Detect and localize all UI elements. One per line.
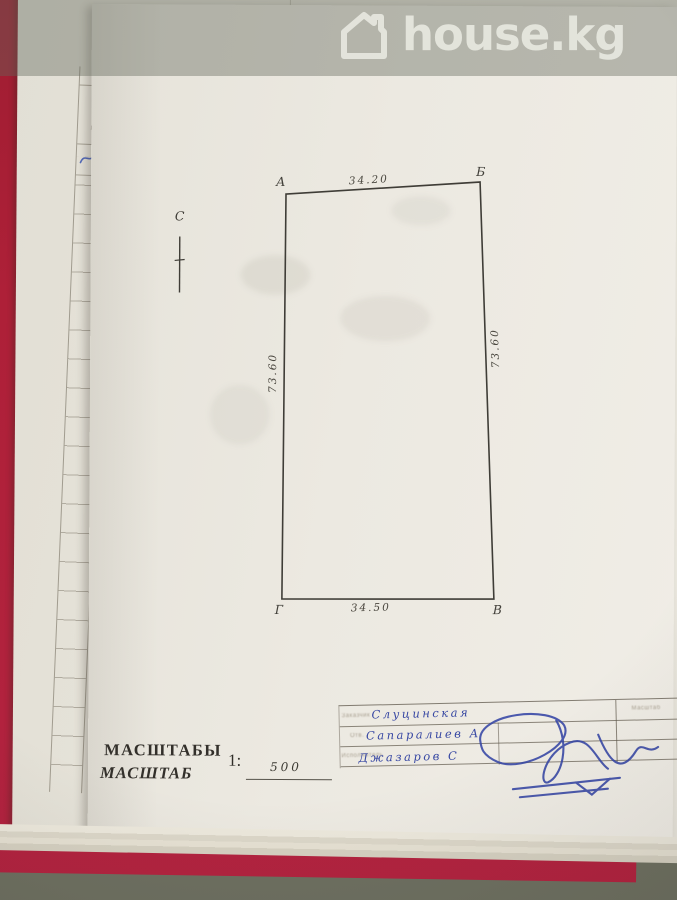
watermark: house.kg (336, 6, 626, 62)
scale-title: МАСШТАБЫ (104, 740, 222, 761)
row-printed-label: Отв. (350, 733, 364, 739)
dimension-top: 34.20 (349, 173, 390, 187)
watermark-brand: house.kg (402, 8, 626, 61)
watermark-band: house.kg (0, 0, 677, 76)
handwritten-name: Джазаров С (358, 749, 459, 765)
plot-boundary (282, 181, 496, 600)
handwritten-name: Слуцинская (371, 705, 470, 721)
scale-subtitle: МАСШТАБ (100, 763, 192, 783)
photo-of-land-plot-document: Литера С А Б В Г (0, 0, 677, 900)
scale-ratio-value: 500 (270, 760, 302, 774)
corner-label-G: Г (274, 602, 284, 617)
north-label: С (175, 208, 185, 223)
title-block-table: Заказчик Отв. Исполнитель Масштаб Слуцин… (338, 697, 677, 768)
table-right-header: Масштаб (631, 705, 660, 712)
corner-label-B: Б (475, 164, 485, 179)
handwritten-name: Сапаралиев А (366, 726, 481, 743)
north-arrow-tick (175, 259, 185, 260)
scale-ratio-prefix: 1: (228, 751, 241, 771)
row-printed-label: Заказчик (342, 713, 371, 720)
dimension-left: 73.60 (267, 353, 279, 393)
dimension-right: 73.60 (489, 328, 502, 368)
plot-plan-sheet: С А Б В Г 34.20 34.50 73.60 73.60 МАСШТА… (88, 4, 677, 837)
house-outline-icon (336, 6, 392, 62)
corner-label-A: А (275, 174, 286, 189)
corner-label-V: В (492, 602, 502, 617)
dimension-bottom: 34.50 (351, 602, 391, 615)
